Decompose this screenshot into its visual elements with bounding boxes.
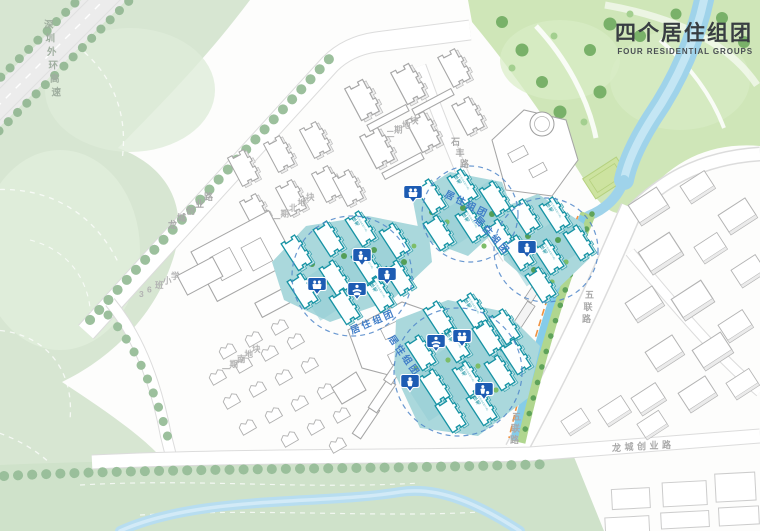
dome-building [492, 110, 578, 196]
site-plan-svg: 住宅 RESIDENTIAL 住宅 RESIDENTIAL 住宅 RESIDEN… [0, 0, 760, 531]
title-block: 四个居住组团 FOUR RESIDENTIAL GROUPS [615, 21, 753, 56]
commercial-bars [352, 363, 402, 439]
context-buildings-southeast [603, 472, 760, 531]
page-title: 四个居住组团 [615, 21, 753, 45]
page-subtitle: FOUR RESIDENTIAL GROUPS [617, 47, 753, 56]
masterplan-canvas: 住宅 RESIDENTIAL 住宅 RESIDENTIAL 住宅 RESIDEN… [0, 0, 760, 531]
phase1-south-houses [208, 318, 351, 453]
